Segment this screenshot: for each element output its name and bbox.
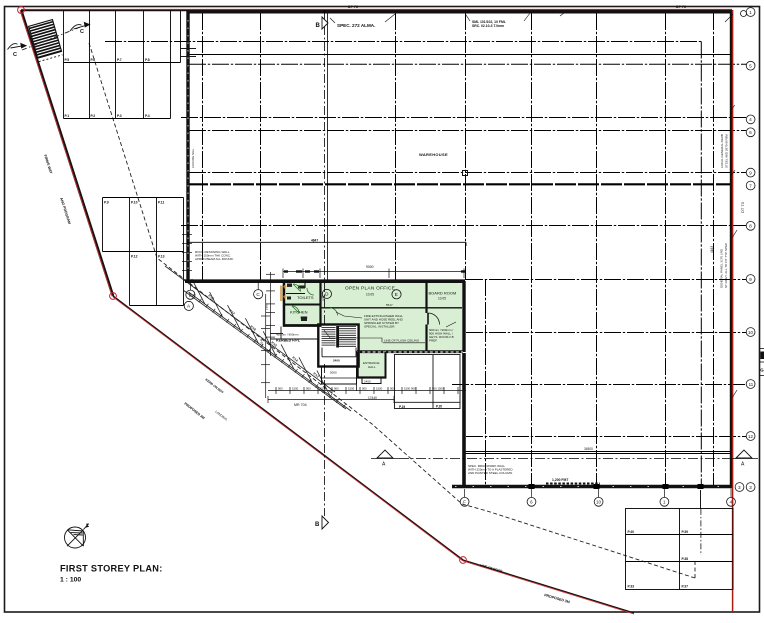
svg-text:P.4: P.4 [145, 114, 150, 118]
svg-text:LOUVRE SILL: LOUVRE SILL [191, 148, 195, 168]
svg-text:SPEC. 272 ALMA.: SPEC. 272 ALMA. [337, 23, 375, 28]
svg-text:P.40: P.40 [628, 530, 635, 534]
svg-text:SRC. 02.10-3 T.0mm: SRC. 02.10-3 T.0mm [472, 24, 504, 28]
svg-text:10: 10 [596, 500, 601, 505]
svg-text:GENERAL PANEL 3170 LRG: GENERAL PANEL 3170 LRG [720, 248, 724, 288]
svg-text:STEEL WID 2870-B FBM: STEEL WID 2870-B FBM [725, 134, 729, 168]
svg-text:P.12: P.12 [131, 255, 138, 259]
svg-text:E: E [395, 292, 398, 297]
svg-text:DP 73: DP 73 [348, 5, 358, 9]
svg-text:900 1500: 900 1500 [432, 387, 444, 391]
svg-text:PREF.: PREF. [429, 339, 438, 343]
svg-text:10.05: 10.05 [366, 293, 374, 297]
svg-text:1500: 1500 [320, 387, 327, 391]
svg-text:9000: 9000 [366, 265, 374, 269]
svg-text:1500: 1500 [376, 387, 383, 391]
svg-text:OPEN PLAN OFFICE: OPEN PLAN OFFICE [345, 286, 395, 291]
svg-text:2400: 2400 [333, 359, 340, 363]
svg-text:P.8: P.8 [145, 58, 150, 62]
svg-text:P.33: P.33 [628, 585, 635, 589]
svg-text:SPECIAL. INSTALLER.: SPECIAL. INSTALLER. [364, 325, 395, 329]
svg-text:17440: 17440 [368, 396, 377, 400]
svg-text:10.05: 10.05 [300, 316, 308, 320]
svg-text:WAREHOUSE: WAREHOUSE [419, 152, 448, 157]
svg-text:F: F [463, 500, 466, 505]
svg-text:P.39: P.39 [682, 530, 689, 534]
svg-text:P.20: P.20 [436, 405, 442, 409]
svg-text:P.5: P.5 [65, 58, 70, 62]
svg-text:P.13: P.13 [158, 255, 165, 259]
svg-text:BOARD ROOM: BOARD ROOM [429, 291, 457, 296]
svg-text:12: 12 [748, 434, 753, 439]
svg-text:P.10: P.10 [131, 201, 138, 205]
svg-text:5000: 5000 [330, 371, 337, 375]
svg-text:B: B [316, 23, 321, 29]
svg-text:P.11: P.11 [158, 201, 164, 205]
svg-text:C: C [80, 29, 84, 35]
svg-text:G: G [760, 368, 764, 373]
svg-text:MR 704: MR 704 [294, 403, 307, 407]
svg-text:4847: 4847 [311, 238, 318, 242]
svg-text:11: 11 [749, 382, 754, 387]
svg-text:P.2: P.2 [91, 114, 96, 118]
svg-text:2640: 2640 [260, 338, 264, 345]
svg-text:B: B [189, 293, 192, 298]
svg-text:LINE OF FLUSH CEILING: LINE OF FLUSH CEILING [384, 339, 420, 343]
svg-text:DP 73: DP 73 [676, 5, 686, 9]
svg-text:10.05: 10.05 [438, 297, 446, 301]
svg-text:P.38: P.38 [682, 557, 689, 561]
svg-text:AND PAINTED STEEL COLUMN.: AND PAINTED STEEL COLUMN. [468, 471, 513, 475]
svg-text:DT 73: DT 73 [740, 201, 745, 213]
svg-text:LOCAL GENERAL KERB: LOCAL GENERAL KERB [720, 134, 724, 168]
svg-text:900: 900 [306, 387, 311, 391]
svg-text:1500: 1500 [292, 387, 299, 391]
svg-text:APRON BEAM ALL ROUND.: APRON BEAM ALL ROUND. [195, 257, 234, 261]
svg-text:FIRST STOREY PLAN:: FIRST STOREY PLAN: [60, 564, 163, 574]
svg-text:KERBED F/PL: KERBED F/PL [276, 339, 301, 343]
svg-text:2400: 2400 [364, 380, 371, 384]
svg-text:10: 10 [748, 330, 753, 335]
svg-text:P.3: P.3 [117, 114, 122, 118]
svg-text:P.7: P.7 [117, 58, 122, 62]
svg-text:KITCHEN: KITCHEN [290, 310, 308, 315]
svg-text:TOILETS: TOILETS [297, 295, 314, 300]
svg-text:900: 900 [362, 387, 367, 391]
svg-text:B: B [315, 522, 320, 528]
svg-text:1500: 1500 [348, 387, 355, 391]
svg-text:34500: 34500 [584, 447, 593, 451]
svg-text:900: 900 [334, 387, 339, 391]
svg-text:1500 900: 1500 900 [404, 387, 416, 391]
svg-text:C: C [13, 52, 17, 58]
svg-text:5517: 5517 [386, 303, 393, 307]
svg-text:1,200 FMT: 1,200 FMT [552, 478, 569, 482]
svg-text:P.9: P.9 [104, 201, 109, 205]
svg-text:HALL: HALL [368, 365, 376, 369]
svg-text:P.37: P.37 [682, 585, 689, 589]
svg-text:1 : 100: 1 : 100 [60, 577, 81, 584]
svg-text:P.19: P.19 [399, 405, 405, 409]
svg-text:P.1: P.1 [65, 114, 70, 118]
svg-text:ST GREY. ALL TO FIT TYP SPEC: ST GREY. ALL TO FIT TYP SPEC [724, 242, 728, 288]
svg-text:450mm / 900mm: 450mm / 900mm [276, 333, 299, 337]
svg-text:P.6: P.6 [91, 58, 96, 62]
svg-text:900: 900 [278, 387, 283, 391]
svg-text:4163: 4163 [710, 246, 714, 253]
